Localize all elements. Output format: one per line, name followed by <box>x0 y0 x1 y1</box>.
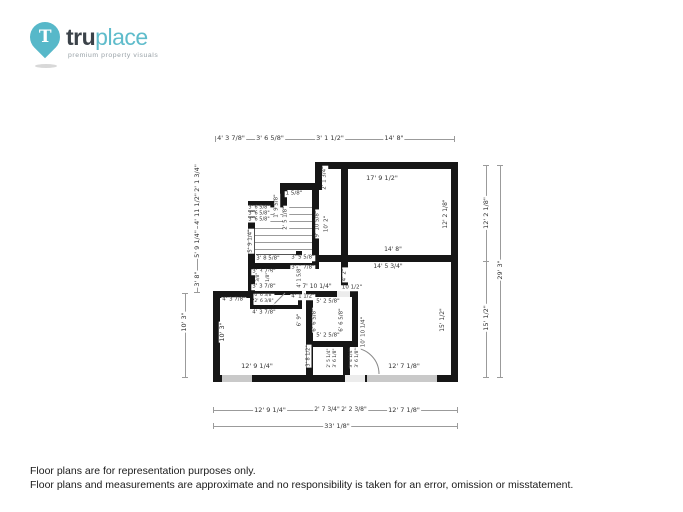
dimension-label: 10' 3" <box>219 321 226 342</box>
dimension-label: 4' 1 5/8" <box>298 265 303 288</box>
dimension-label: 33' 1/8" <box>323 423 351 430</box>
dimension-tick <box>182 377 188 378</box>
door-opening <box>345 375 365 382</box>
dimension-line <box>185 293 186 378</box>
dimension-label: 4' 3 7/8" <box>221 297 246 303</box>
page: T truplace premium property visuals 4' 3… <box>0 0 683 512</box>
brand-tagline: premium property visuals <box>68 52 158 59</box>
dimension-label: 2' 5 1/8" <box>283 205 289 230</box>
dimension-tick <box>182 293 188 294</box>
dimension-label: 10' 2" <box>324 215 330 233</box>
disclaimer: Floor plans are for representation purpo… <box>30 464 573 492</box>
window-segment <box>367 375 437 382</box>
dimension-label: 0' 6 3/8" <box>253 294 274 299</box>
dimension-label: 5' 2 5/8" <box>315 333 340 339</box>
dimension-tick <box>483 377 489 378</box>
dimension-label: 12' 9 1/4" <box>253 407 287 414</box>
dimension-tick <box>213 423 214 429</box>
dimension-label: 5' 9 1/4" <box>194 229 201 259</box>
dimension-tick <box>194 292 200 293</box>
dimension-tick <box>497 377 503 378</box>
dimension-label: 7' 10 1/4" <box>301 284 332 290</box>
dimension-label: 12' 2 1/8" <box>443 198 449 229</box>
dimension-label: 15' 1/2" <box>483 304 490 332</box>
brand-tru: tru <box>66 24 95 50</box>
dimension-label: 3' 6 5/8" <box>247 218 270 223</box>
dimension-label: 29' 3" <box>497 259 504 280</box>
dimension-label: 10' 10 1/4" <box>361 316 367 348</box>
stair-tread <box>255 249 312 250</box>
dimension-label: 3' 6 1/8" <box>356 347 361 368</box>
dimension-label: 2' 6 3/8" <box>253 300 274 305</box>
dimension-label: 17' 9 1/2" <box>365 175 399 182</box>
dimension-label: 4' 1 1/2" <box>290 294 315 300</box>
brand-wordmark: truplace <box>66 24 148 51</box>
dimension-label: 10 1/2" <box>341 285 363 291</box>
dimension-label: 4' 3 7/8" <box>216 135 246 142</box>
dimension-label: 6' 9" <box>297 313 303 328</box>
dimension-label: 3' 1 1/2" <box>315 135 345 142</box>
stair-tread <box>255 235 312 236</box>
dimension-label: 6' 6 5/8" <box>312 307 318 332</box>
door-opening <box>337 291 350 297</box>
disclaimer-line-2: Floor plans and measurements are approxi… <box>30 478 573 492</box>
dimension-label: 1 5/8" <box>285 191 304 197</box>
brand-place: place <box>95 24 147 50</box>
stair-tread <box>255 242 312 243</box>
dimension-tick <box>483 165 489 166</box>
dimension-label: 3' 8 1/2" <box>307 344 312 367</box>
dimension-tick <box>213 407 214 413</box>
wall-segment <box>315 162 458 169</box>
dimension-label: 3' 8" <box>194 270 201 287</box>
map-pin-icon: T <box>24 16 66 58</box>
dimension-label: 2' 5 1/4" <box>328 347 333 368</box>
disclaimer-line-1: Floor plans are for representation purpo… <box>30 464 573 478</box>
dimension-label: 12' 7 1/8" <box>387 363 421 370</box>
dimension-tick <box>457 407 458 413</box>
wall-segment <box>352 291 358 347</box>
dimension-label: 12' 9 1/4" <box>240 363 274 370</box>
wall-segment <box>341 162 348 262</box>
dimension-label: 12' 2 1/8" <box>483 196 490 230</box>
dimension-tick <box>454 136 455 142</box>
dimension-label: 15' 1/2" <box>440 307 446 333</box>
dimension-label: 5' 2 5/8" <box>315 299 340 305</box>
dimension-tick <box>483 261 489 262</box>
dimension-tick <box>457 423 458 429</box>
dimension-label: 4' 2" <box>342 268 348 283</box>
dimension-label: 2' 1 3/4" <box>194 163 201 193</box>
dimension-label: 1' 9 5/8" <box>274 193 280 218</box>
dimension-label: 3' 6 5/8" <box>255 135 285 142</box>
dimension-label: 2' 2 3/8" <box>340 407 368 413</box>
wall-segment <box>312 255 458 262</box>
dimension-label: 3' 4 7/8" <box>290 265 315 271</box>
dimension-label: 3' 4 1/4" <box>350 347 355 368</box>
dimension-label: 4' 11 1/2" <box>194 192 201 226</box>
dimension-label: 12' 7 1/8" <box>387 407 421 414</box>
dimension-label: 14' 8" <box>383 135 404 142</box>
window-segment <box>222 375 252 382</box>
dimension-label: 5' 9 1/4" <box>248 228 254 253</box>
wall-segment <box>306 341 358 347</box>
dimension-label: 2' 7 3/4" <box>313 407 341 413</box>
dimension-label: 14' 5 3/4" <box>372 264 403 270</box>
dimension-tick <box>497 165 503 166</box>
wall-segment <box>451 162 458 382</box>
dimension-label: 9' 10 5/8" <box>315 210 321 239</box>
dimension-label: 3' 3 7/8" <box>251 284 276 290</box>
dimension-label: 2' 1 3/4" <box>322 165 328 190</box>
dimension-label: 3' 6 1/8" <box>334 347 339 368</box>
dimension-label: 14' 8" <box>383 247 403 253</box>
dimension-label: 4' 3 7/8" <box>251 310 276 316</box>
dimension-label: 6' 6 5/8" <box>339 307 345 332</box>
pin-shadow <box>35 64 57 68</box>
dimension-label: 10' 3" <box>181 311 188 332</box>
dimension-label: 3' 5 5/8" <box>290 255 315 261</box>
truplace-logo: T truplace premium property visuals <box>28 18 228 78</box>
pin-letter: T <box>39 27 52 47</box>
dimension-label: 3' 8 5/8" <box>255 256 280 262</box>
